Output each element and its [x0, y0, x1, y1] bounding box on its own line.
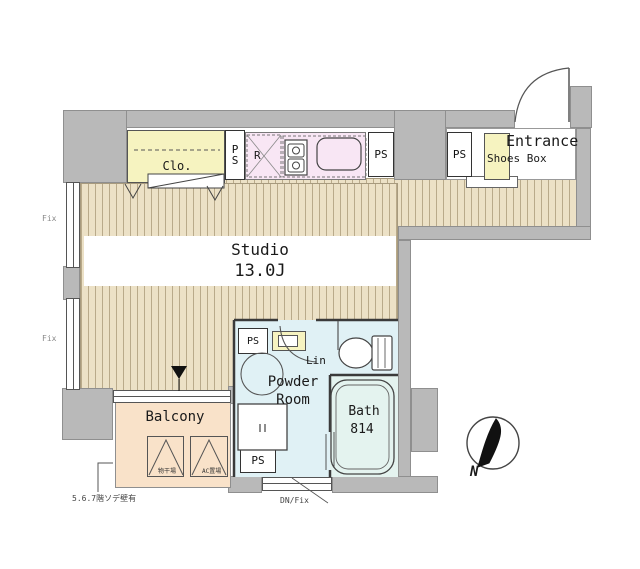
studio-label: Studio	[200, 240, 320, 259]
shoes-box-label: Shoes Box	[487, 152, 547, 165]
balcony-hatch-left-label: 物干場	[158, 466, 176, 475]
linen-label: Lin	[306, 354, 326, 367]
fix-label-upper: Fix	[42, 214, 56, 223]
fix-label-lower: Fix	[42, 334, 56, 343]
closet-fold-mark-left	[125, 184, 141, 198]
bath-size-label: 814	[338, 422, 386, 437]
dn-fix-label: DN/Fix	[280, 496, 309, 505]
powder-room-label-1: Powder	[248, 374, 338, 390]
powder-room-label-2: Room	[248, 392, 338, 408]
toilet-tank-icon	[372, 336, 392, 370]
bath-label: Bath	[338, 404, 390, 419]
entrance-label: Entrance	[506, 132, 578, 150]
washer-pan-icon	[238, 404, 287, 450]
studio-area-label: 13.0J	[200, 261, 320, 281]
balcony-label: Balcony	[125, 409, 225, 425]
balcony-hatch-right-label: AC置場	[202, 466, 221, 475]
note-leader-line	[98, 463, 113, 492]
fridge-label: R	[254, 149, 261, 162]
floor-plan: P S PS PS PS PS	[0, 0, 640, 569]
compass-north-label: N	[470, 464, 478, 480]
entrance-door-arc	[515, 68, 569, 122]
wall-note-label: 5.6.7階ソデ壁有	[72, 493, 136, 504]
toilet-bowl-icon	[339, 338, 373, 368]
sink-icon	[317, 138, 361, 170]
plan-detail-overlay	[0, 0, 640, 569]
balcony-access-marker	[171, 366, 187, 379]
closet-label: Clo.	[150, 159, 204, 173]
